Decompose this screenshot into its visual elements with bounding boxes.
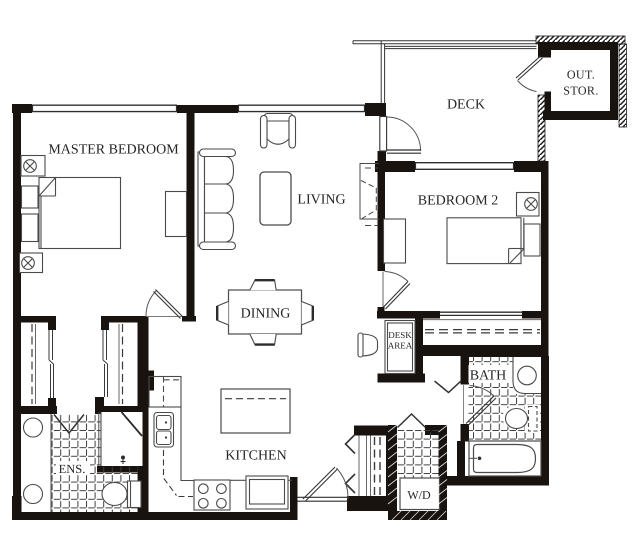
svg-text:STOR.: STOR. [563,84,598,98]
svg-text:DESK: DESK [388,330,412,340]
svg-text:DINING: DINING [241,307,291,322]
svg-text:KITCHEN: KITCHEN [225,449,286,464]
svg-text:BEDROOM 2: BEDROOM 2 [418,194,499,209]
svg-text:DECK: DECK [447,98,485,113]
svg-text:AREA: AREA [388,341,413,351]
svg-text:ENS.: ENS. [59,462,86,476]
svg-text:LIVING: LIVING [297,193,345,208]
svg-text:W/D: W/D [407,488,431,502]
svg-text:BATH: BATH [470,369,507,384]
svg-text:MASTER BEDROOM: MASTER BEDROOM [48,143,179,158]
svg-text:OUT.: OUT. [567,68,595,82]
